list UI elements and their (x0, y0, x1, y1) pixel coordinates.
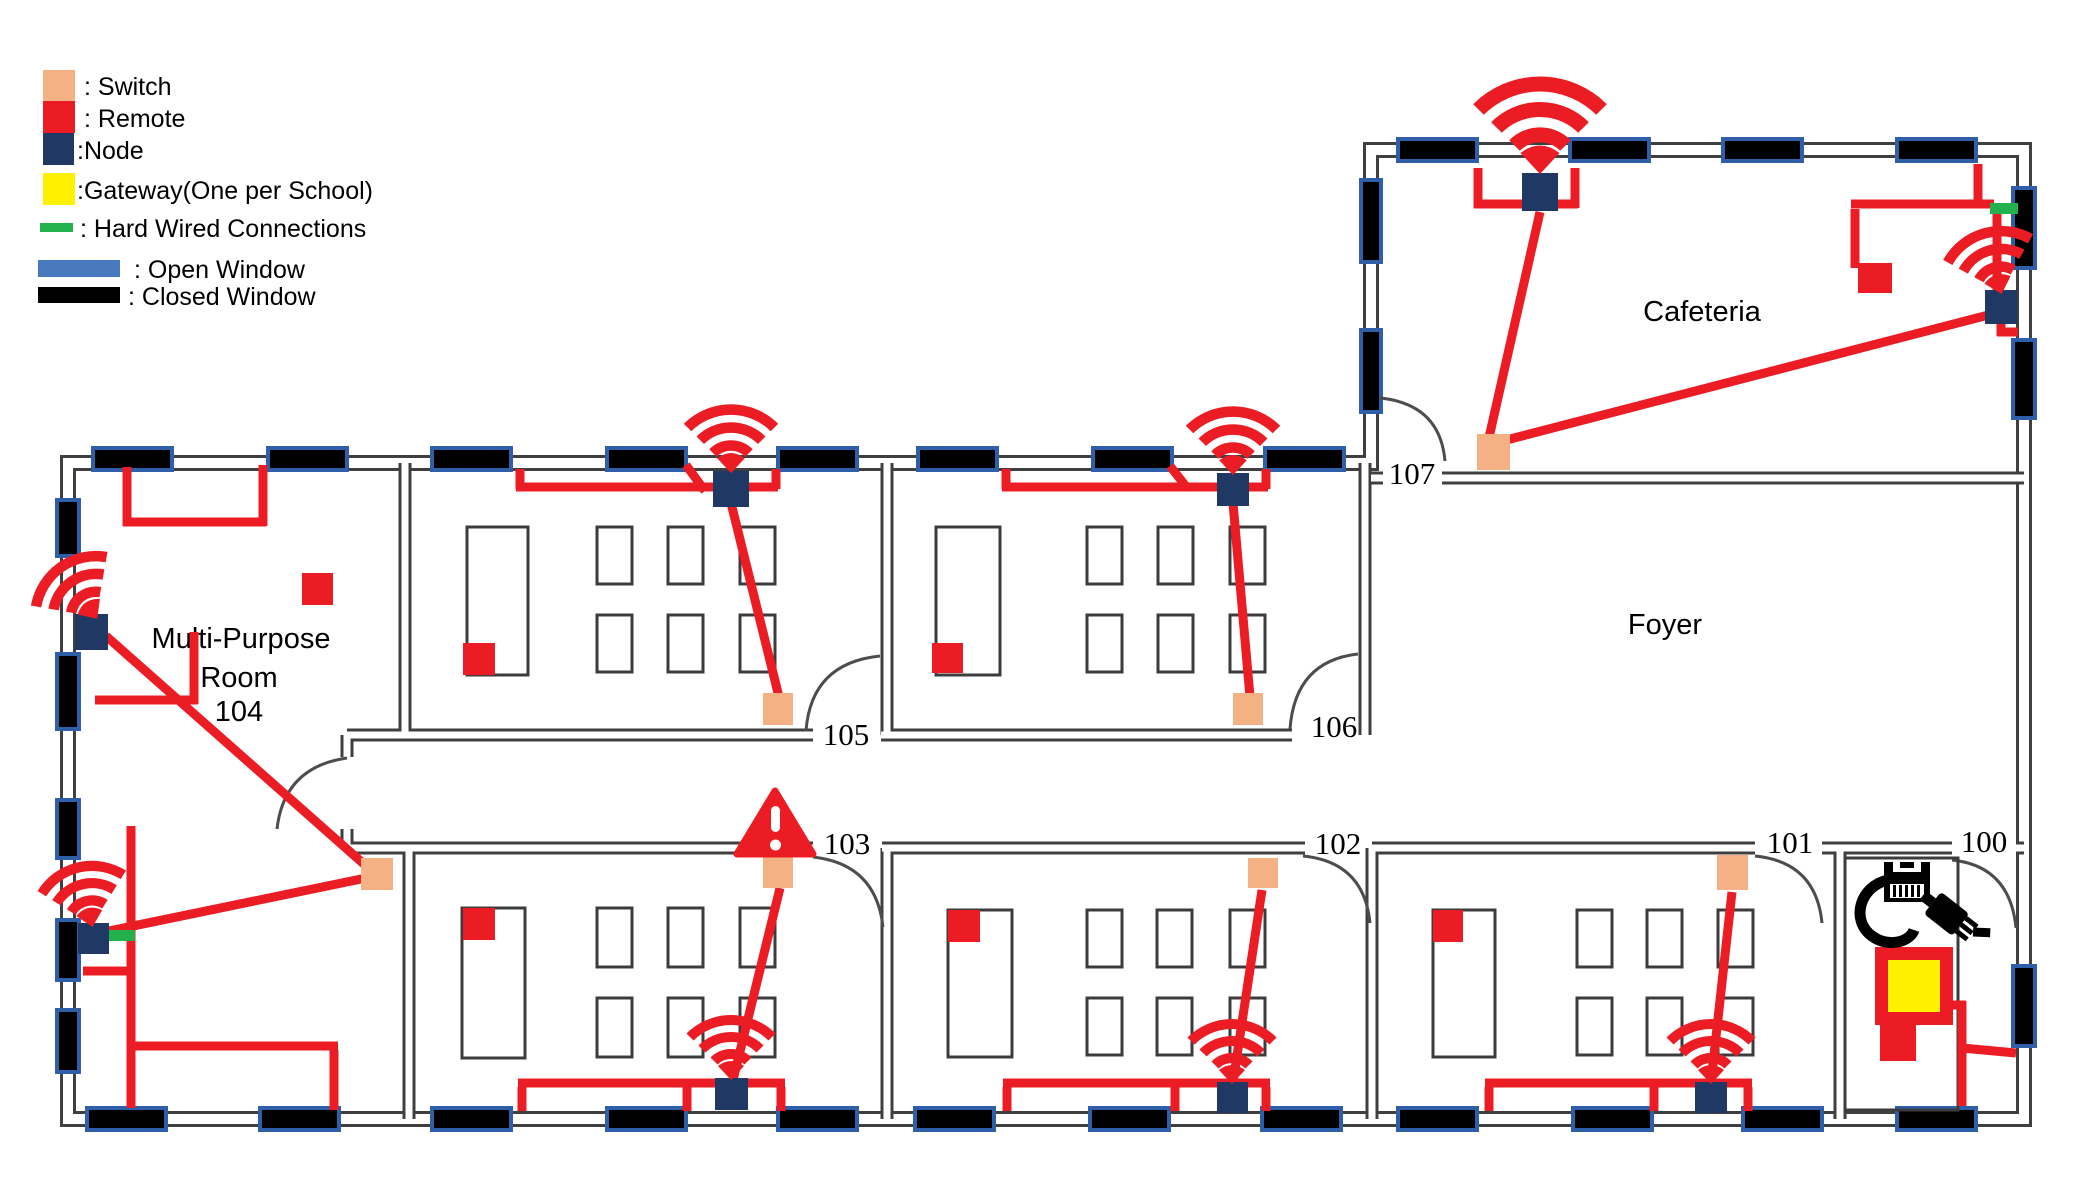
hardwired-room-104-south (108, 930, 135, 941)
switch-legend-label: : Switch (84, 74, 172, 100)
node-room-105 (713, 471, 749, 507)
hardwired-cafeteria-east (1990, 203, 2018, 214)
remote-room-100 (1880, 1025, 1916, 1061)
switch-room-106 (1233, 693, 1263, 725)
closed-window (268, 448, 347, 470)
switch-room-105 (763, 693, 793, 725)
node-swatch (43, 133, 74, 165)
desk (1577, 998, 1612, 1055)
hardwired-swatch (40, 223, 73, 232)
switch-room-103 (763, 857, 793, 888)
gateway-swatch (43, 173, 75, 205)
desk (1157, 910, 1192, 967)
closed-window (87, 1108, 166, 1130)
remote-cafeteria (1858, 263, 1892, 293)
switch-room-101 (1717, 855, 1748, 890)
desk (1577, 910, 1612, 967)
switch-cafeteria-107 (1477, 434, 1510, 470)
desk (1158, 615, 1193, 672)
remote-legend-label: : Remote (84, 106, 185, 132)
label-room-102: 102 (1315, 826, 1362, 861)
closed-window (57, 920, 79, 980)
node-room-103 (715, 1078, 748, 1110)
label-room-103: 103 (824, 826, 871, 861)
ethernet-cable-icon (1860, 862, 1991, 953)
closed-window (1570, 139, 1649, 161)
desk (1157, 998, 1192, 1055)
label-room-106: 106 (1311, 709, 1358, 744)
closed-window (778, 1108, 857, 1130)
closed-window (1090, 1108, 1169, 1130)
floor-plan-page: Multi-Purpose Room 104 Cafeteria Foyer 1… (0, 0, 2098, 1201)
remote-room-106 (932, 643, 963, 673)
closed-window (432, 448, 511, 470)
closed-window (57, 800, 79, 858)
closed-window (1265, 448, 1344, 470)
hardwired-legend-label: : Hard Wired Connections (80, 216, 366, 242)
closed-window (2013, 966, 2035, 1046)
open-window-legend-label: : Open Window (134, 257, 305, 283)
closed-window (1573, 1108, 1652, 1130)
desk (668, 908, 703, 967)
closed-window (57, 1010, 79, 1072)
switches-layer (361, 434, 1748, 890)
closed-window (1897, 139, 1976, 161)
desk (1647, 910, 1682, 967)
label-room-107: 107 (1389, 456, 1436, 491)
closed-window (1361, 330, 1381, 412)
closed-window (607, 448, 686, 470)
remote-swatch (43, 101, 75, 133)
closed-window-swatch (38, 287, 120, 303)
desk (1087, 527, 1122, 584)
open-window-swatch (38, 260, 120, 277)
node-cafeteria-east (1985, 290, 2017, 324)
node-room-106 (1217, 473, 1249, 506)
node-legend-label: :Node (77, 138, 144, 164)
desk (1087, 998, 1122, 1055)
closed-window (1398, 139, 1477, 161)
remote-room-105 (463, 643, 495, 675)
closed-window (915, 1108, 994, 1130)
desk (597, 908, 632, 967)
desk (1087, 910, 1122, 967)
closed-window (57, 500, 79, 556)
label-multipurpose-line3: 104 (215, 696, 263, 728)
closed-window (432, 1108, 511, 1130)
legend: : Switch : Remote :Node :Gateway(One per… (0, 0, 520, 330)
node-room-104-south (78, 923, 109, 954)
label-cafeteria: Cafeteria (1643, 296, 1762, 328)
desk (668, 615, 703, 672)
closed-window-legend-label: : Closed Window (128, 284, 316, 310)
closed-window (57, 654, 79, 729)
remote-room-103 (463, 908, 495, 940)
gateway-room-100 (1875, 947, 1953, 1025)
label-multipurpose-line2: Room (200, 662, 277, 694)
label-room-101: 101 (1767, 825, 1814, 860)
desk (1087, 615, 1122, 672)
closed-window (260, 1108, 339, 1130)
remote-room-102 (948, 910, 980, 942)
switch-room-102 (1248, 858, 1278, 888)
switch-swatch (43, 70, 75, 101)
desk (1158, 527, 1193, 584)
closed-window (918, 448, 997, 470)
node-room-102 (1217, 1082, 1248, 1113)
desk (668, 527, 703, 584)
node-room-101 (1695, 1082, 1727, 1113)
closed-window (778, 448, 857, 470)
node-cafeteria-north (1522, 173, 1558, 211)
remote-room-104 (302, 573, 333, 605)
desks-layer (462, 527, 1753, 1058)
closed-window (1262, 1108, 1341, 1130)
desk (597, 527, 632, 584)
closed-window (1093, 448, 1172, 470)
node-room-104-north (75, 614, 108, 650)
closed-window (1398, 1108, 1477, 1130)
gateway-legend-label: :Gateway(One per School) (77, 178, 373, 204)
desk (597, 615, 632, 672)
closed-window (1743, 1108, 1822, 1130)
closed-window (607, 1108, 686, 1130)
closed-window (2013, 340, 2035, 418)
label-room-100: 100 (1961, 824, 2008, 859)
closed-window (93, 448, 172, 470)
label-foyer: Foyer (1628, 609, 1702, 641)
warning-icon (737, 791, 813, 854)
label-multipurpose-line1: Multi-Purpose (152, 623, 331, 655)
switch-room-104 (361, 858, 393, 890)
closed-window (1723, 139, 1802, 161)
label-room-105: 105 (823, 717, 870, 752)
desk (1647, 998, 1682, 1055)
remote-room-101 (1433, 910, 1463, 942)
desk (597, 998, 632, 1057)
closed-window (1361, 180, 1381, 262)
